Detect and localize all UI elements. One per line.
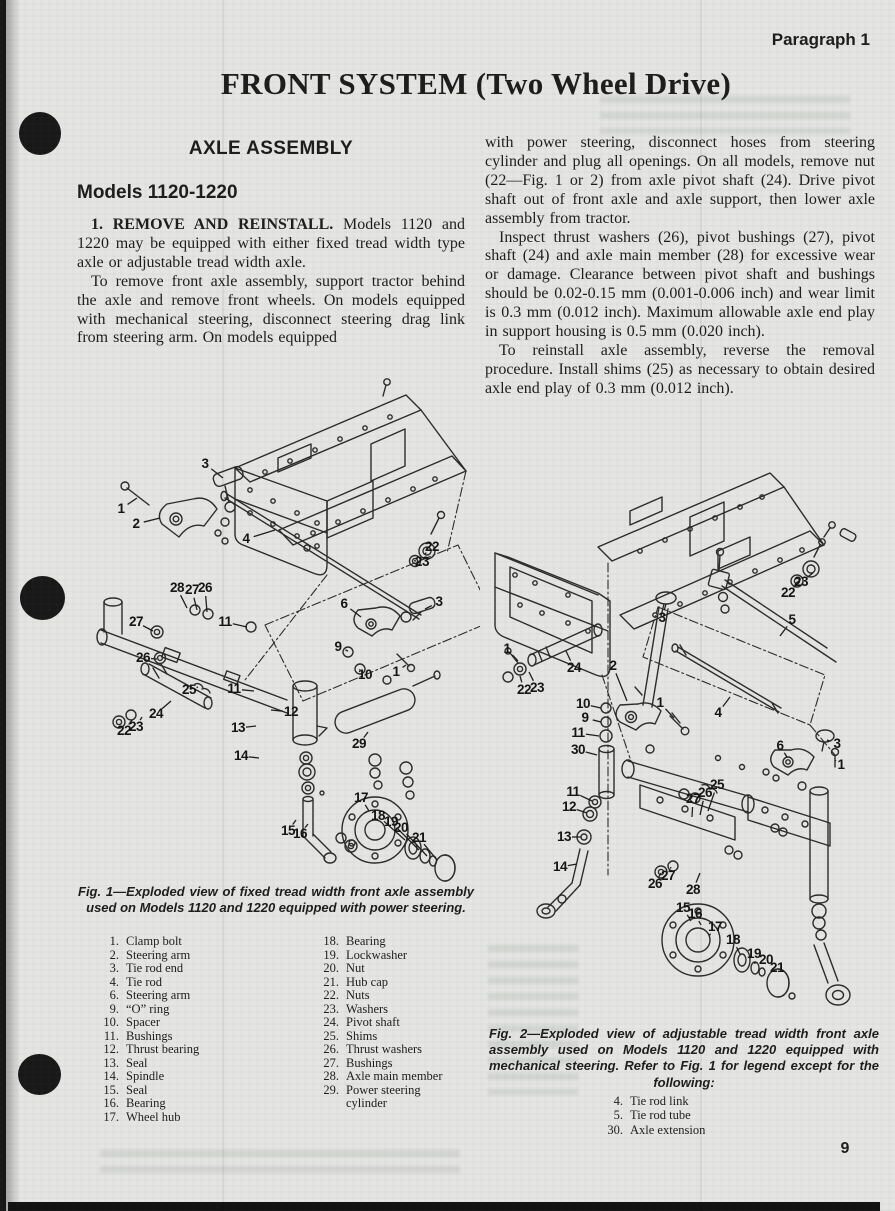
legend-item-number: 12. xyxy=(95,1043,119,1057)
page-title: FRONT SYSTEM (Two Wheel Drive) xyxy=(77,66,875,102)
legend-item: 27. Bushings xyxy=(315,1057,480,1071)
legend-item-label: Axle extension xyxy=(630,1123,740,1137)
fig1-right-knuckle xyxy=(343,596,436,684)
part-number-callout: 21 xyxy=(770,960,784,975)
legend-item-label: Washers xyxy=(346,1003,456,1017)
legend-item-label: Hub cap xyxy=(346,976,456,990)
part-number-callout: 25 xyxy=(182,682,196,697)
fig2-small-hardware xyxy=(505,648,745,770)
legend-item-number: 19. xyxy=(315,949,339,963)
part-number-callout: 3 xyxy=(435,594,442,609)
fig2-axle-extension-left xyxy=(599,746,614,799)
legend-item-label: Spacer xyxy=(126,1016,236,1030)
part-number-callout: 13 xyxy=(231,720,245,735)
part-number-callout: 3 xyxy=(201,456,208,471)
part-number-callout: 10 xyxy=(358,667,372,682)
part-number-callout: 9 xyxy=(581,710,588,725)
fig2-tie-rod xyxy=(672,644,781,713)
part-number-callout: 23 xyxy=(129,719,143,734)
legend-item: 12. Thrust bearing xyxy=(95,1043,305,1057)
legend-item-label: Power steering cylinder xyxy=(346,1084,456,1111)
legend-item: 26. Thrust washers xyxy=(315,1043,480,1057)
paragraph: with power steering, disconnect hoses fr… xyxy=(485,134,875,229)
hole-punch xyxy=(20,576,65,620)
legend-item-number: 1. xyxy=(95,935,119,949)
part-number-callout: 13 xyxy=(557,829,571,844)
part-number-callout: 12 xyxy=(284,704,298,719)
legend-item-number: 15. xyxy=(95,1084,119,1098)
bleed-through-ghost xyxy=(100,1150,460,1176)
legend-item: 14. Spindle xyxy=(95,1070,305,1084)
fig2-diagram xyxy=(480,455,890,1025)
fig2-spacer-oring-bushing-stack xyxy=(600,703,612,742)
part-number-callout: 4 xyxy=(242,531,249,546)
part-number-callout: 22 xyxy=(517,682,531,697)
part-number-callout: 23 xyxy=(794,574,808,589)
legend-item: 16. Bearing xyxy=(95,1097,305,1111)
legend-item-label: Lockwasher xyxy=(346,949,456,963)
legend-item-number: 4. xyxy=(95,976,119,990)
part-number-callout: 12 xyxy=(562,799,576,814)
legend-item-number: 25. xyxy=(315,1030,339,1044)
legend-item-number: 10. xyxy=(95,1016,119,1030)
legend-item-label: Pivot shaft xyxy=(346,1016,456,1030)
legend-item-label: Wheel hub xyxy=(126,1111,236,1125)
legend-item-label: Tie rod link xyxy=(630,1094,740,1108)
legend-item-label: Nut xyxy=(346,962,456,976)
legend-item-label: Thrust washers xyxy=(346,1043,456,1057)
legend-item-number: 2. xyxy=(95,949,119,963)
legend-item: 4. Tie rod link xyxy=(595,1094,775,1108)
fig1-legend-col1: 1. Clamp bolt 2. Steering arm 3. Tie rod… xyxy=(95,935,305,1124)
legend-item-number: 6. xyxy=(95,989,119,1003)
legend-item: 30. Axle extension xyxy=(595,1123,775,1137)
part-number-callout: 27 xyxy=(129,614,143,629)
legend-item: 9. “O” ring xyxy=(95,1003,305,1017)
part-number-callout: 2 xyxy=(609,658,616,673)
part-number-callout: 17 xyxy=(708,919,722,934)
page-number: 9 xyxy=(820,1140,870,1158)
part-number-callout: 9 xyxy=(334,639,341,654)
legend-item: 5. Tie rod tube xyxy=(595,1108,775,1122)
legend-item: 24. Pivot shaft xyxy=(315,1016,480,1030)
part-number-callout: 5 xyxy=(788,612,795,627)
legend-item-number: 3. xyxy=(95,962,119,976)
legend-item: 4. Tie rod xyxy=(95,976,305,990)
right-column: with power steering, disconnect hoses fr… xyxy=(485,134,875,399)
paragraph: To reinstall axle assembly, reverse the … xyxy=(485,342,875,399)
legend-item-label: “O” ring xyxy=(126,1003,236,1017)
part-number-callout: 22 xyxy=(781,585,795,600)
part-number-callout: 3 xyxy=(658,610,665,625)
legend-item-number: 28. xyxy=(315,1070,339,1084)
legend-item: 17. Wheel hub xyxy=(95,1111,305,1125)
run-in-heading: 1. REMOVE AND REINSTALL. xyxy=(91,216,333,233)
part-number-callout: 3 xyxy=(833,736,840,751)
legend-item-number: 14. xyxy=(95,1070,119,1084)
legend-item-number: 22. xyxy=(315,989,339,1003)
part-number-callout: 17 xyxy=(354,790,368,805)
fig1-wheel-hub xyxy=(342,797,455,881)
legend-item-label: Tie rod end xyxy=(126,962,236,976)
part-number-callout: 1 xyxy=(837,757,844,772)
legend-item: 10. Spacer xyxy=(95,1016,305,1030)
part-number-callout: 18 xyxy=(726,932,740,947)
fig1-legend-col2: 18. Bearing 19. Lockwasher 20. Nut 21. H… xyxy=(315,935,480,1111)
legend-item: 20. Nut xyxy=(315,962,480,976)
part-number-callout: 21 xyxy=(412,830,426,845)
part-number-callout: 26 xyxy=(198,580,212,595)
part-number-callout: 1 xyxy=(117,501,124,516)
section-heading: AXLE ASSEMBLY xyxy=(77,138,465,160)
legend-item: 1. Clamp bolt xyxy=(95,935,305,949)
part-number-callout: 26 xyxy=(136,650,150,665)
legend-item-number: 23. xyxy=(315,1003,339,1017)
part-number-callout: 10 xyxy=(576,696,590,711)
models-subheading: Models 1120-1220 xyxy=(77,182,465,204)
legend-item-number: 29. xyxy=(315,1084,339,1111)
legend-item-label: Shims xyxy=(346,1030,456,1044)
part-number-callout: 23 xyxy=(530,680,544,695)
legend-item-number: 4. xyxy=(595,1094,623,1108)
legend-item-number: 16. xyxy=(95,1097,119,1111)
part-number-callout: 16 xyxy=(688,906,702,921)
legend-item-number: 11. xyxy=(95,1030,119,1044)
legend-item-number: 30. xyxy=(595,1123,623,1137)
fig2-caption: Fig. 2—Exploded view of adjustable tread… xyxy=(489,1026,879,1091)
figure-1-exploded-view: 3124222328272627116392610125241112222313… xyxy=(75,368,480,883)
left-column: AXLE ASSEMBLY Models 1120-1220 1. REMOVE… xyxy=(77,138,465,348)
legend-item-number: 9. xyxy=(95,1003,119,1017)
part-number-callout: 1 xyxy=(656,695,663,710)
part-number-callout: 28 xyxy=(686,882,700,897)
part-number-callout: 22 xyxy=(425,539,439,554)
fig2-wheel-hub xyxy=(662,904,795,999)
legend-item: 3. Tie rod end xyxy=(95,962,305,976)
paragraph: 1. REMOVE AND REINSTALL. Models 1120 and… xyxy=(77,216,465,273)
fig2-left-spindle xyxy=(537,796,601,918)
part-number-callout: 27 xyxy=(185,582,199,597)
fig1-caption: Fig. 1—Exploded view of fixed tread widt… xyxy=(78,884,474,916)
part-number-callout: 30 xyxy=(571,742,585,757)
legend-item-label: Tie rod xyxy=(126,976,236,990)
legend-item: 2. Steering arm xyxy=(95,949,305,963)
legend-item-label: Thrust bearing xyxy=(126,1043,236,1057)
legend-item-label: Bearing xyxy=(126,1097,236,1111)
legend-item-label: Nuts xyxy=(346,989,456,1003)
part-number-callout: 6 xyxy=(340,596,347,611)
paragraph: To remove front axle assembly, support t… xyxy=(77,273,465,349)
legend-item-number: 27. xyxy=(315,1057,339,1071)
fig2-extra-legend: 4. Tie rod link 5. Tie rod tube 30. Axle… xyxy=(595,1094,775,1137)
part-number-callout: 25 xyxy=(710,777,724,792)
legend-item-number: 5. xyxy=(595,1108,623,1122)
legend-item-label: Axle main member xyxy=(346,1070,456,1084)
part-number-callout: 26 xyxy=(648,876,662,891)
legend-item: 25. Shims xyxy=(315,1030,480,1044)
legend-item: 23. Washers xyxy=(315,1003,480,1017)
part-number-callout: 20 xyxy=(394,820,408,835)
part-number-callout: 23 xyxy=(415,554,429,569)
legend-item-label: Clamp bolt xyxy=(126,935,236,949)
part-number-callout: 11 xyxy=(218,614,231,629)
fig1-steering-arm-and-tie-rod-end xyxy=(121,465,244,544)
part-number-callout: 27 xyxy=(661,868,675,883)
legend-item-label: Seal xyxy=(126,1057,236,1071)
legend-item: 13. Seal xyxy=(95,1057,305,1071)
part-number-callout: 1 xyxy=(503,641,510,656)
part-number-callout: 2 xyxy=(132,516,139,531)
legend-item-number: 13. xyxy=(95,1057,119,1071)
part-number-callout: 14 xyxy=(553,859,567,874)
legend-item: 29. Power steering cylinder xyxy=(315,1084,480,1111)
legend-item-label: Steering arm xyxy=(126,989,236,1003)
paragraph: Inspect thrust washers (26), pivot bushi… xyxy=(485,229,875,342)
legend-item-label: Seal xyxy=(126,1084,236,1098)
part-number-callout: 4 xyxy=(714,705,721,720)
part-number-callout: 24 xyxy=(567,660,581,675)
part-number-callout: 14 xyxy=(234,748,248,763)
legend-item-number: 20. xyxy=(315,962,339,976)
legend-item-label: Bushings xyxy=(126,1030,236,1044)
part-number-callout: 1 xyxy=(392,664,399,679)
legend-item-number: 24. xyxy=(315,1016,339,1030)
scan-edge-shade xyxy=(6,0,20,1211)
legend-item: 18. Bearing xyxy=(315,935,480,949)
legend-item: 15. Seal xyxy=(95,1084,305,1098)
paragraph-reference: Paragraph 1 xyxy=(700,30,870,50)
part-number-callout: 16 xyxy=(293,826,307,841)
legend-item-number: 18. xyxy=(315,935,339,949)
legend-item: 19. Lockwasher xyxy=(315,949,480,963)
legend-item-number: 17. xyxy=(95,1111,119,1125)
legend-item-label: Tie rod tube xyxy=(630,1108,740,1122)
part-number-callout: 28 xyxy=(170,580,184,595)
scan-edge-bottom-band xyxy=(8,1202,880,1211)
legend-item-number: 21. xyxy=(315,976,339,990)
part-number-callout: 11 xyxy=(566,784,579,799)
legend-item-label: Steering arm xyxy=(126,949,236,963)
legend-item-number: 26. xyxy=(315,1043,339,1057)
hole-punch xyxy=(19,112,61,155)
legend-item: 21. Hub cap xyxy=(315,976,480,990)
part-number-callout: 11 xyxy=(571,725,584,740)
legend-item: 22. Nuts xyxy=(315,989,480,1003)
legend-item: 6. Steering arm xyxy=(95,989,305,1003)
part-number-callout: 24 xyxy=(149,706,163,721)
hole-punch xyxy=(18,1054,61,1095)
legend-item: 28. Axle main member xyxy=(315,1070,480,1084)
fig1-power-steering-cylinder xyxy=(317,671,440,799)
legend-item: 11. Bushings xyxy=(95,1030,305,1044)
legend-item-label: Bushings xyxy=(346,1057,456,1071)
fig2-axle-main-member xyxy=(622,760,830,878)
part-number-callout: 11 xyxy=(227,681,240,696)
part-number-callout: 6 xyxy=(776,738,783,753)
part-number-callout: 18 xyxy=(371,808,385,823)
figure-2-exploded-view: 2322122232423541091113063111121314272625… xyxy=(480,455,890,1025)
scanned-manual-page: Paragraph 1 FRONT SYSTEM (Two Wheel Driv… xyxy=(0,0,895,1211)
part-number-callout: 29 xyxy=(352,736,366,751)
legend-item-label: Bearing xyxy=(346,935,456,949)
legend-item-label: Spindle xyxy=(126,1070,236,1084)
fig1-kingpin-stack-and-spindle xyxy=(299,752,357,863)
